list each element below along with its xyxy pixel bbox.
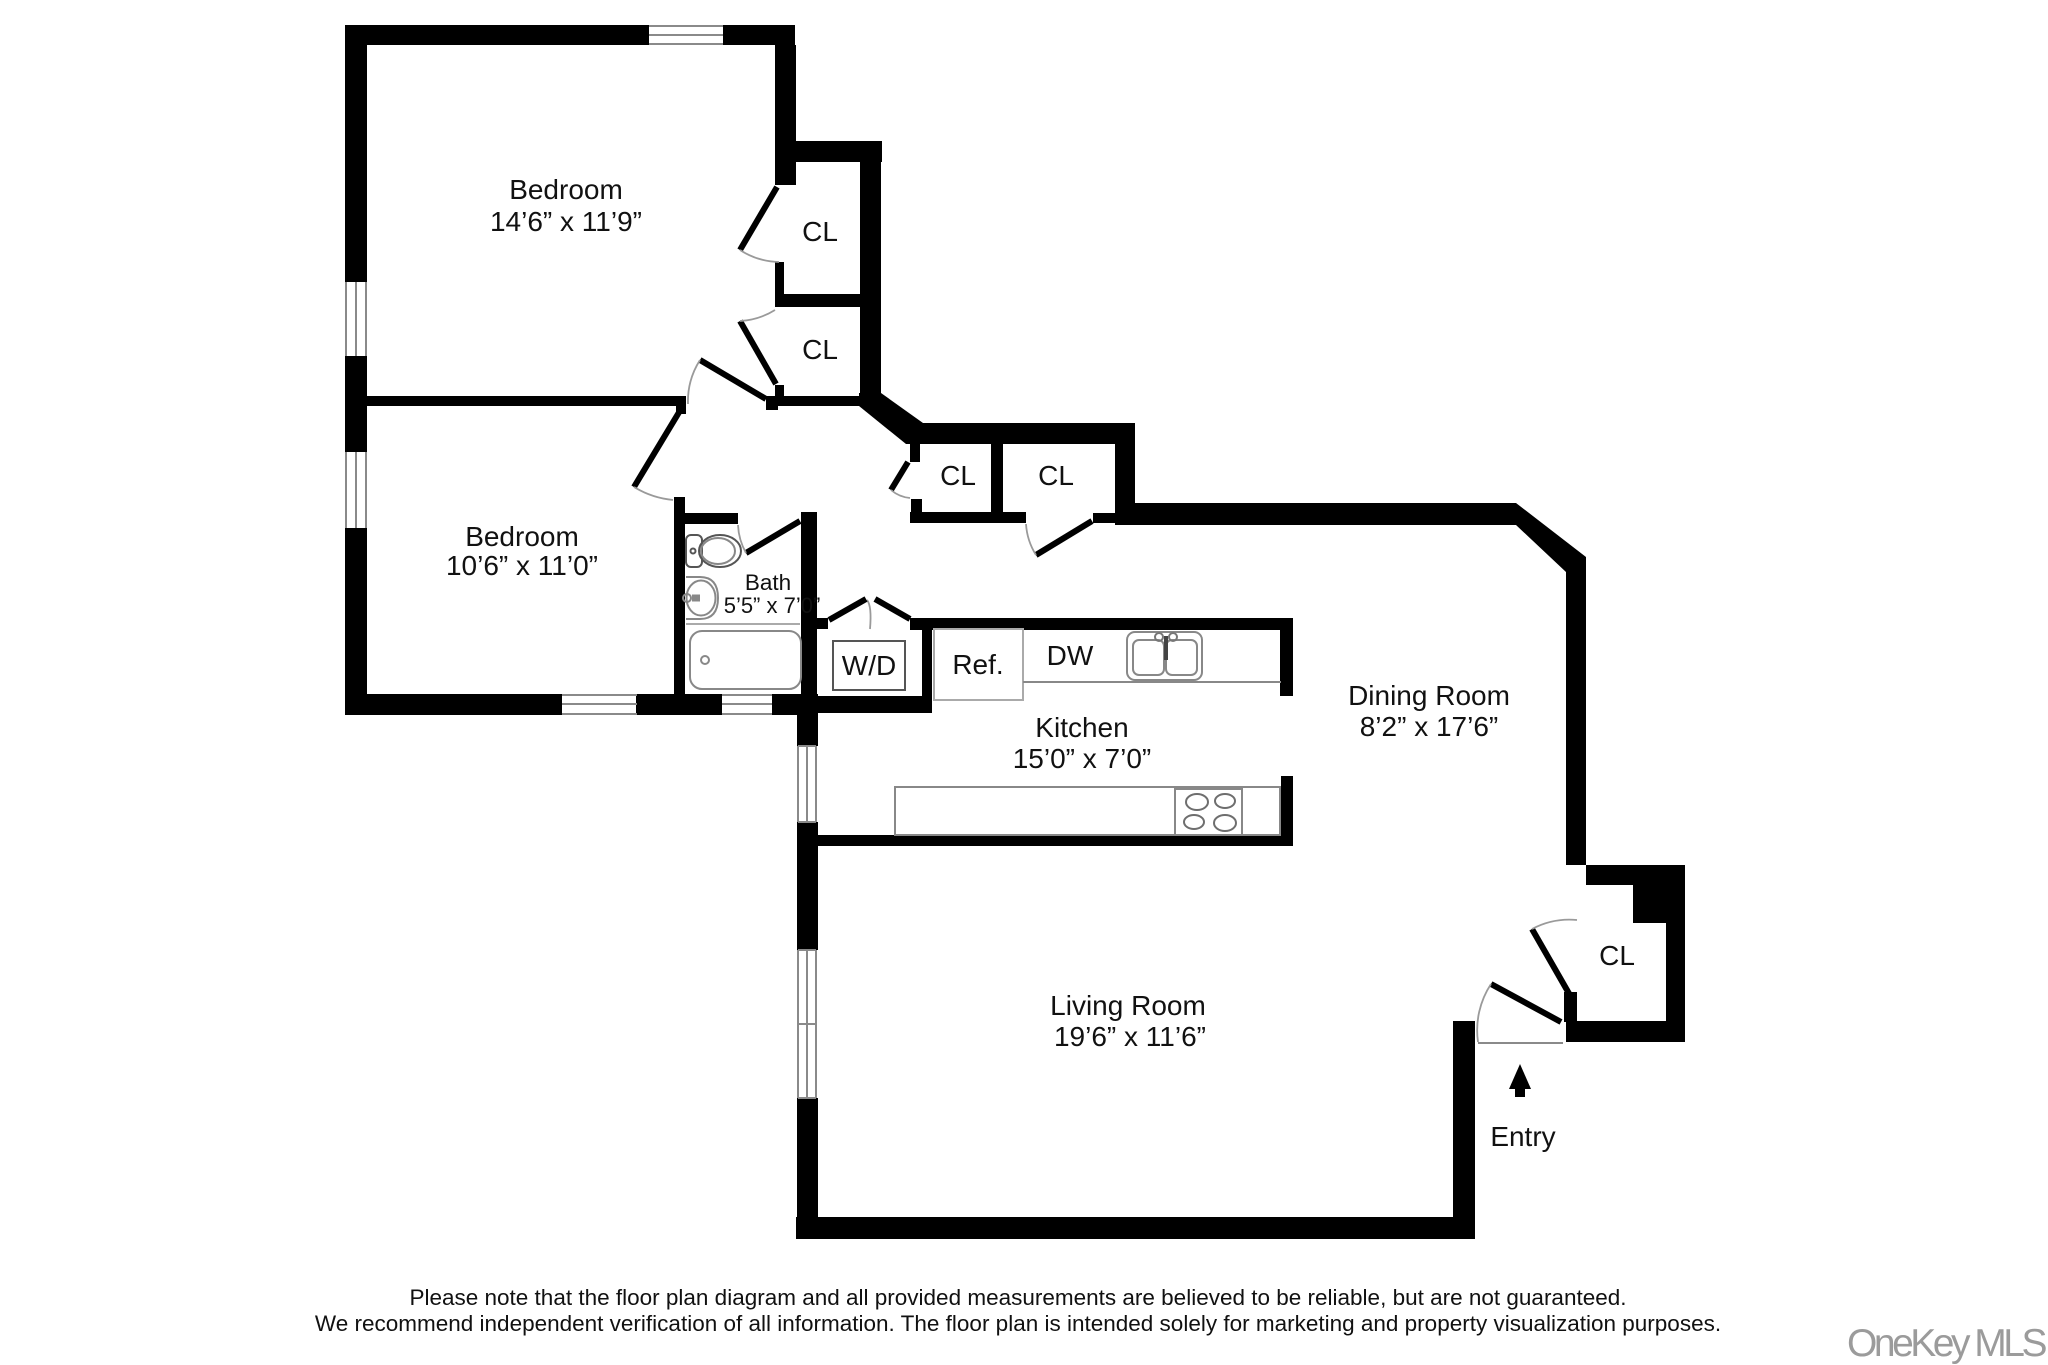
svg-text:Living Room: Living Room [1050, 990, 1206, 1021]
svg-text:14’6” x 11’9”: 14’6” x 11’9” [490, 206, 642, 237]
svg-text:OneKey MLS: OneKey MLS [1847, 1322, 2046, 1365]
svg-text:5’5” x 7’0”: 5’5” x 7’0” [724, 593, 821, 618]
svg-text:CL: CL [940, 460, 976, 491]
svg-text:Kitchen: Kitchen [1035, 712, 1128, 743]
svg-text:15’0” x 7’0”: 15’0” x 7’0” [1013, 743, 1152, 774]
svg-text:8’2” x 17’6”: 8’2” x 17’6” [1360, 711, 1499, 742]
svg-text:CL: CL [802, 334, 838, 365]
svg-text:DW: DW [1047, 640, 1094, 671]
svg-text:CL: CL [1599, 940, 1635, 971]
svg-text:Ref.: Ref. [952, 649, 1003, 680]
svg-text:Dining Room: Dining Room [1348, 680, 1510, 711]
svg-text:Entry: Entry [1490, 1121, 1555, 1152]
svg-text:Bedroom: Bedroom [509, 174, 623, 205]
svg-text:19’6” x 11’6”: 19’6” x 11’6” [1054, 1021, 1206, 1052]
svg-text:Bedroom: Bedroom [465, 521, 579, 552]
svg-text:W/D: W/D [842, 650, 896, 681]
svg-text:Bath: Bath [745, 570, 791, 595]
svg-text:CL: CL [1038, 460, 1074, 491]
svg-text:Please note that the floor pla: Please note that the floor plan diagram … [409, 1285, 1626, 1310]
svg-text:CL: CL [802, 216, 838, 247]
svg-text:10’6” x 11’0”: 10’6” x 11’0” [446, 550, 598, 581]
svg-text:We recommend independent verif: We recommend independent verification of… [315, 1311, 1721, 1336]
